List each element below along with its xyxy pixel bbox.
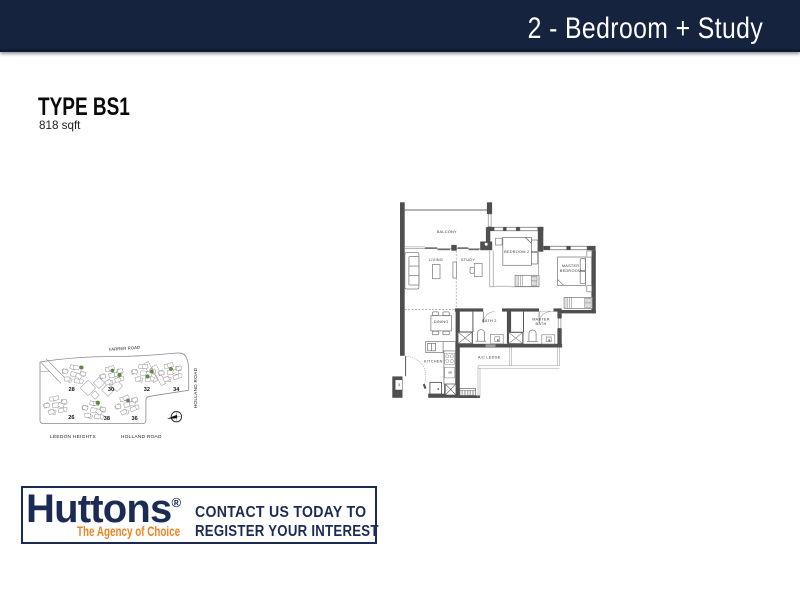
svg-text:MASTER: MASTER — [532, 317, 550, 321]
svg-text:BALCONY: BALCONY — [437, 230, 457, 234]
svg-text:BEDROOM: BEDROOM — [560, 269, 582, 273]
svg-text:32: 32 — [144, 387, 150, 393]
svg-text:STUDY: STUDY — [461, 258, 475, 262]
svg-text:LIVING: LIVING — [429, 258, 443, 262]
svg-text:DINING: DINING — [434, 320, 449, 324]
svg-text:BATH: BATH — [536, 322, 547, 326]
svg-text:38: 38 — [104, 416, 110, 422]
svg-text:A/C LEDGE: A/C LEDGE — [478, 355, 501, 359]
svg-text:36: 36 — [131, 416, 137, 422]
svg-text:30: 30 — [108, 387, 114, 393]
svg-text:BEDROOM 2: BEDROOM 2 — [504, 250, 529, 254]
svg-text:BATH 2: BATH 2 — [482, 319, 497, 323]
svg-text:WB: WB — [448, 371, 452, 374]
svg-text:LEEDON HEIGHTS: LEEDON HEIGHTS — [50, 434, 96, 440]
svg-text:FARRER ROAD: FARRER ROAD — [109, 345, 141, 352]
svg-text:MASTER: MASTER — [562, 264, 580, 268]
svg-text:HOLLAND ROAD: HOLLAND ROAD — [121, 434, 162, 440]
svg-text:34: 34 — [173, 387, 180, 393]
svg-text:HOLLAND ROAD: HOLLAND ROAD — [193, 367, 198, 408]
svg-text:28: 28 — [68, 387, 74, 393]
svg-text:KITCHEN: KITCHEN — [424, 360, 443, 364]
svg-text:26: 26 — [68, 415, 74, 421]
